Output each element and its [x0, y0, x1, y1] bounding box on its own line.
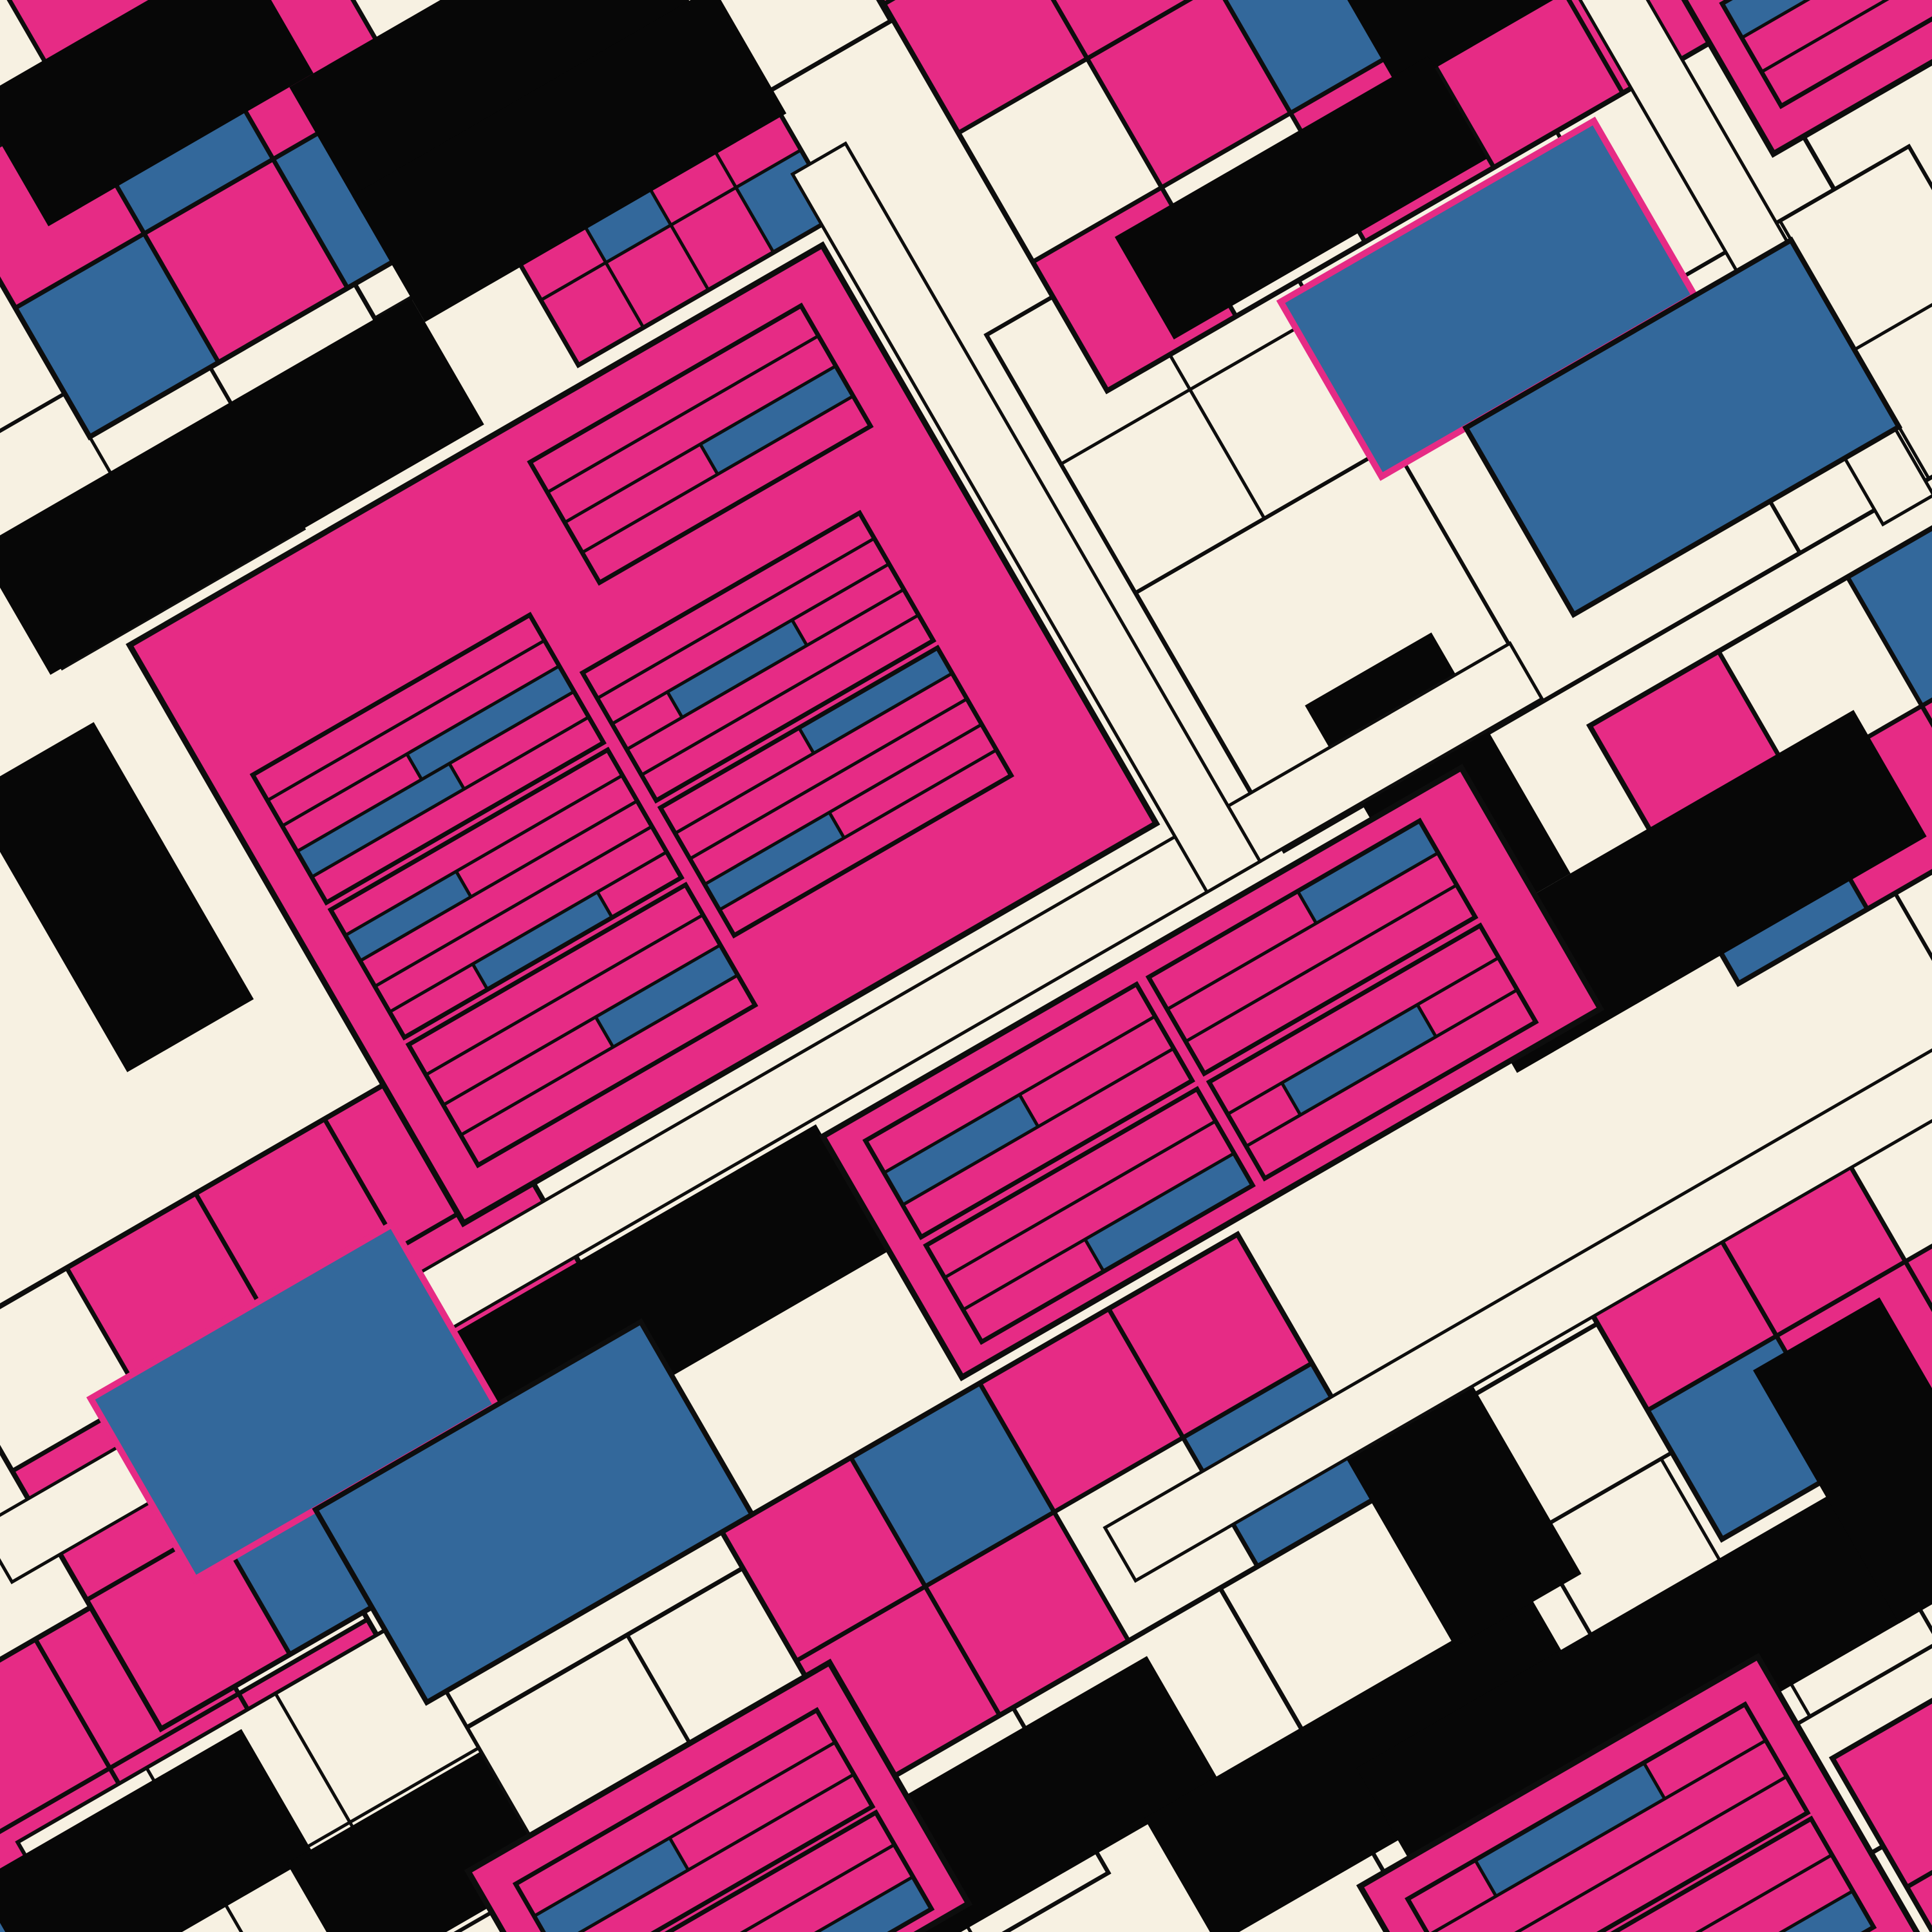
artwork-canvas — [0, 0, 1932, 1932]
generative-artwork — [0, 0, 1932, 1932]
